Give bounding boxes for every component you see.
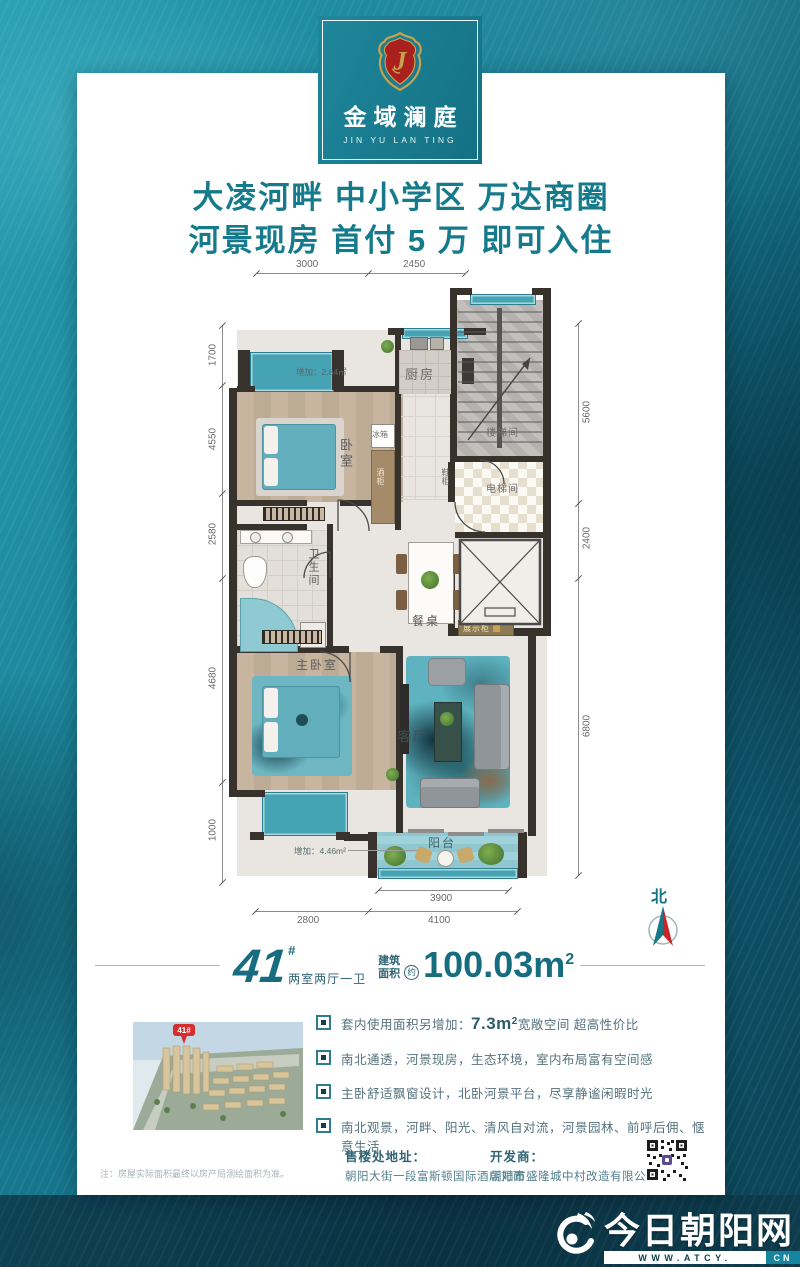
- square-bullet-icon: [316, 1118, 331, 1133]
- feature-text: 南北通透，河景现房，生态环境，室内布局富有空间感: [341, 1049, 653, 1068]
- square-bullet-icon: [316, 1084, 331, 1099]
- dim-right-1: 5600: [582, 401, 593, 423]
- square-bullet-icon: [316, 1015, 331, 1030]
- wine-cabinet-label: 酒柜: [375, 468, 386, 486]
- area-label-bottom: 面积: [378, 968, 400, 981]
- dim-balcony: 3900: [430, 893, 452, 904]
- aerial-thumbnail: 41#: [133, 1022, 303, 1130]
- brand-name-en: JIN YU LAN TING: [343, 135, 456, 145]
- site-name: 今日朝阳网: [604, 1212, 800, 1250]
- qr-code: [645, 1138, 689, 1182]
- divider-line: [95, 965, 220, 966]
- dining-table-label: 餐桌: [412, 612, 440, 629]
- elevator-hall-label: 电梯间: [486, 480, 519, 495]
- feature-area-value: 7.3m: [471, 1014, 512, 1033]
- dim-left-3: 2580: [208, 523, 219, 545]
- brand-name-cn: 金域澜庭: [337, 98, 464, 132]
- approx-badge: 约: [404, 965, 419, 980]
- headline: 大凌河畔 中小学区 万达商圈 河景现房 首付 5 万 即可入住: [77, 176, 725, 262]
- feature-text: 套内使用面积另增加：7.3m2宽敞空间 超高性价比: [341, 1014, 639, 1034]
- brand-logo-box: J 金域澜庭 JIN YU LAN TING: [318, 16, 482, 164]
- site-url: WWW.ATCY.: [604, 1251, 766, 1264]
- master-bedroom-label: 主卧室: [296, 656, 338, 673]
- developer-block: 开发商： 朝阳市盛隆城中村改造有限公司: [490, 1146, 658, 1184]
- stairwell-label: 楼梯间: [486, 424, 519, 439]
- feature-item: 南北通透，河景现房，生态环境，室内布局富有空间感: [316, 1049, 706, 1068]
- site-url-suffix: CN: [766, 1251, 800, 1264]
- dim-left-5: 1000: [208, 819, 219, 841]
- unit-number: 41: [231, 942, 288, 989]
- site-logo-icon: [548, 1212, 596, 1262]
- headline-line1: 大凌河畔 中小学区 万达商圈: [77, 176, 725, 219]
- balcony-label: 阳台: [428, 834, 456, 851]
- developer-label: 开发商：: [490, 1146, 658, 1165]
- disclaimer-note: 注：房屋实际面积最终以房产局测绘面积为准。: [100, 1167, 289, 1180]
- unit-hash: #: [288, 943, 295, 958]
- dim-bottom-1: 2800: [297, 915, 319, 926]
- unit-strip: 41 # 两室两厅一卫 建筑 面积 约 100.03m2: [95, 936, 705, 994]
- area-sup: 2: [565, 951, 574, 968]
- annotation-north-bay: 增加：2.84㎡: [296, 366, 347, 378]
- bedroom-label: 卧室: [336, 438, 355, 470]
- shoe-cabinet-label: 鞋柜: [440, 468, 451, 486]
- annotation-leader-line: [348, 850, 418, 851]
- dim-line: [255, 911, 517, 912]
- site-url-bar: WWW.ATCY. CN: [604, 1251, 800, 1264]
- dim-line: [256, 273, 465, 274]
- dim-right-3: 6800: [582, 715, 593, 737]
- square-bullet-icon: [316, 1050, 331, 1065]
- dim-left-1: 1700: [208, 344, 219, 366]
- area-label-top: 建筑: [378, 955, 400, 968]
- dim-line: [378, 890, 508, 891]
- dim-line: [578, 323, 579, 875]
- area-value: 100.03m2: [423, 947, 574, 983]
- kitchen-label: 厨房: [405, 364, 435, 383]
- dim-left-4: 4680: [208, 667, 219, 689]
- svg-text:41#: 41#: [177, 1026, 191, 1035]
- site-watermark: 今日朝阳网 WWW.ATCY. CN: [548, 1212, 800, 1264]
- annotation-south-bay: 增加：4.46m²: [294, 845, 346, 857]
- dim-left-2: 4550: [208, 428, 219, 450]
- developer-value: 朝阳市盛隆城中村改造有限公司: [490, 1168, 658, 1184]
- dim-top-2: 2450: [403, 259, 425, 270]
- dim-top-1: 3000: [296, 259, 318, 270]
- living-room-label: 客厅: [398, 726, 428, 745]
- feature-text-pre: 套内使用面积另增加：: [341, 1018, 471, 1032]
- feature-item: 套内使用面积另增加：7.3m2宽敞空间 超高性价比: [316, 1014, 706, 1034]
- feature-item: 主卧舒适飘窗设计，北卧河景平台，尽享静谧闲暇时光: [316, 1083, 706, 1102]
- divider-line: [580, 965, 705, 966]
- headline-line2: 河景现房 首付 5 万 即可入住: [77, 219, 725, 262]
- fridge-label: 冰箱: [372, 429, 388, 440]
- dim-bottom-2: 4100: [428, 915, 450, 926]
- dim-right-2: 2400: [582, 527, 593, 549]
- poster-page: J 金域澜庭 JIN YU LAN TING 大凌河畔 中小学区 万达商圈 河景…: [0, 0, 800, 1267]
- feature-text: 主卧舒适飘窗设计，北卧河景平台，尽享静谧闲暇时光: [341, 1083, 653, 1102]
- shield-monogram-icon: J: [371, 30, 429, 94]
- plan-linework: [230, 290, 550, 890]
- dim-line: [222, 325, 223, 882]
- unit-layout: 两室两厅一卫: [288, 970, 366, 987]
- bathroom-label: 卫生间: [305, 548, 321, 587]
- feature-text-post: 宽敞空间 超高性价比: [518, 1018, 639, 1032]
- area-number: 100.03m: [423, 944, 565, 985]
